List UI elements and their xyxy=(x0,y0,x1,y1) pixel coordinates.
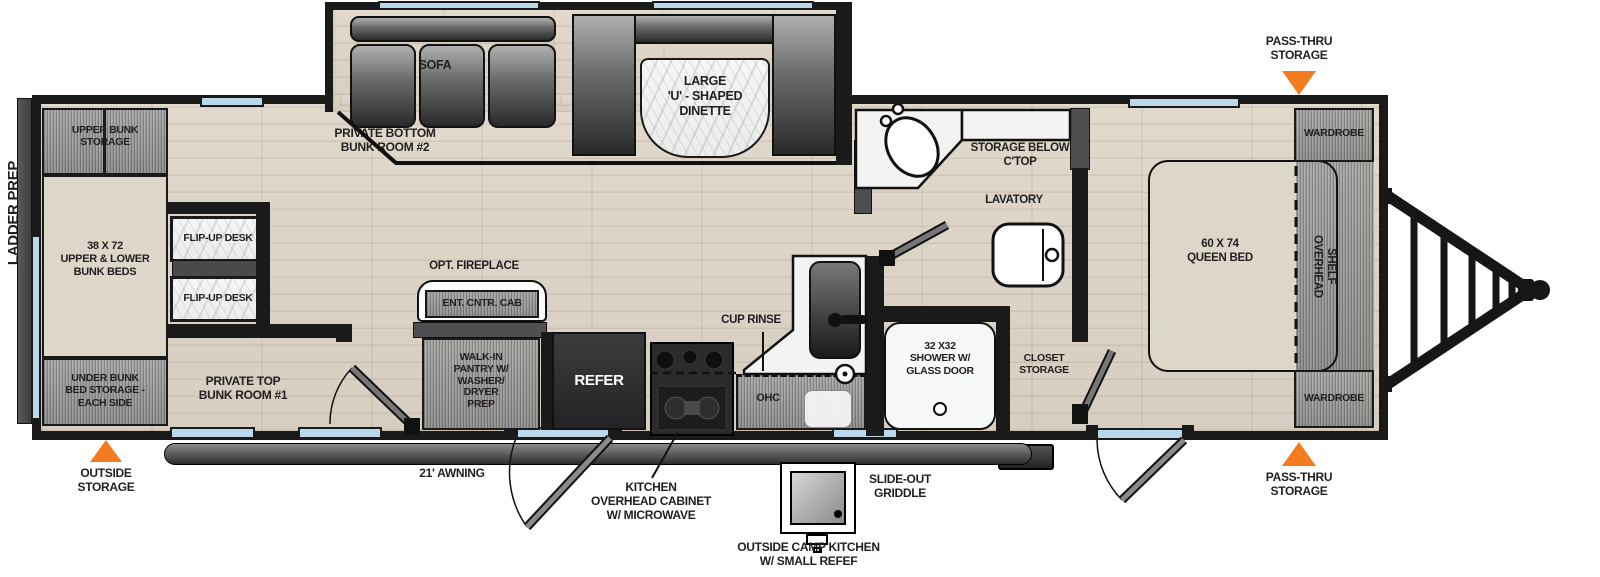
label-dinette: LARGE 'U' - SHAPED DINETTE xyxy=(642,74,768,118)
awning-bar xyxy=(164,443,1032,465)
griddle-knob xyxy=(834,510,842,518)
sofa-back xyxy=(350,16,556,42)
shower-left-wall xyxy=(866,256,884,436)
label-pantry: WALK-IN PANTRY W/ WASHER/ DRYER PREP xyxy=(424,352,538,411)
door-jamb xyxy=(1182,425,1194,440)
label-under-bunk-storage: UNDER BUNK BED STORAGE - EACH SIDE xyxy=(44,372,166,409)
dinette-left-bench xyxy=(572,14,636,156)
window-slideout-left xyxy=(378,1,540,10)
label-bunk-room2: PRIVATE BOTTOM BUNK ROOM #2 xyxy=(300,126,470,154)
label-bunk-beds: 38 X 72 UPPER & LOWER BUNK BEDS xyxy=(44,240,166,279)
bunkroom-wall xyxy=(166,324,350,338)
bunkroom-wall xyxy=(256,202,270,338)
label-flip-up-desk-2: FLIP-UP DESK xyxy=(172,292,264,304)
bunkroom-door-jamb xyxy=(336,324,352,342)
window-rear xyxy=(31,235,41,420)
window-bottom-1 xyxy=(170,427,255,439)
label-ent-cntr-cab: ENT. CNTR. CAB xyxy=(425,297,539,309)
floorplan-diagram: LADDER PREP SOFA LARGE 'U' - SHAPED DINE… xyxy=(0,0,1600,577)
label-shower: 32 X32 SHOWER W/ GLASS DOOR xyxy=(886,340,994,377)
hitch-frame-icon xyxy=(1384,188,1550,392)
dinette-right-bench xyxy=(772,14,836,156)
window-slideout-right xyxy=(652,1,814,10)
sofa-cushion xyxy=(419,44,485,128)
bath-bedroom-wall xyxy=(1072,168,1088,342)
shower-drain xyxy=(933,402,947,416)
entry-door xyxy=(1122,440,1184,500)
slideout-right-wall xyxy=(836,2,852,165)
window-bedroom-top xyxy=(1128,97,1240,108)
label-closet-storage: CLOSET STORAGE xyxy=(1006,352,1082,377)
label-storage-below-ctop: STORAGE BELOW C'TOP xyxy=(950,142,1090,169)
label-refer: REFER xyxy=(552,372,646,390)
bunkroom-wall xyxy=(166,202,266,214)
label-slide-out-griddle: SLIDE-OUT GRIDDLE xyxy=(854,472,946,500)
fireplace-bar xyxy=(413,322,547,338)
range-stove xyxy=(650,342,734,436)
window-bottom-2 xyxy=(298,427,382,439)
label-outside-storage: OUTSIDE STORAGE xyxy=(56,466,156,494)
rear-wall-panel xyxy=(17,98,32,424)
pass-thru-arrow-bottom-icon xyxy=(1282,442,1316,466)
label-overhead-shelf: OVERHEAD SHELF xyxy=(1310,212,1354,320)
label-flip-up-desk-1: FLIP-UP DESK xyxy=(172,232,264,244)
label-lavatory: LAVATORY xyxy=(962,194,1066,208)
sofa-cushion xyxy=(350,44,416,128)
label-ohc: OHC xyxy=(742,392,794,405)
label-awning: 21' AWNING xyxy=(404,466,500,480)
label-sofa: SOFA xyxy=(400,58,470,73)
label-wardrobe-bottom: WARDROBE xyxy=(1294,392,1374,404)
pass-thru-arrow-top-icon xyxy=(1282,71,1316,95)
label-bunk-room1: PRIVATE TOP BUNK ROOM #1 xyxy=(168,374,318,402)
entry-door-arc xyxy=(1097,440,1122,500)
window-top-left xyxy=(200,96,264,107)
bath-jamb-left xyxy=(854,140,872,214)
label-pass-thru-top: PASS-THRU STORAGE xyxy=(1244,34,1354,62)
entry-door-leaf xyxy=(1122,440,1184,500)
door-jamb xyxy=(1086,425,1098,440)
label-outside-camp-kitchen: OUTSIDE CAMP KITCHEN W/ SMALL REFEF xyxy=(716,540,901,568)
sofa-cushion xyxy=(488,44,556,128)
label-queen-bed: 60 X 74 QUEEN BED xyxy=(1160,238,1280,265)
label-opt-fireplace: OPT. FIREPLACE xyxy=(404,260,544,274)
cup-rinse-glass xyxy=(804,390,852,428)
shower-top-wall xyxy=(866,306,1010,322)
label-kitchen-ohc: KITCHEN OVERHEAD CABINET W/ MICROWAVE xyxy=(576,480,726,522)
entry-door-sill xyxy=(1096,428,1184,440)
label-pass-thru-bottom: PASS-THRU STORAGE xyxy=(1244,470,1354,498)
outside-storage-arrow-icon xyxy=(90,440,122,462)
label-upper-bunk-storage: UPPER BUNK STORAGE xyxy=(44,124,166,149)
label-wardrobe-top: WARDROBE xyxy=(1294,127,1374,139)
label-cup-rinse: CUP RINSE xyxy=(706,314,796,328)
